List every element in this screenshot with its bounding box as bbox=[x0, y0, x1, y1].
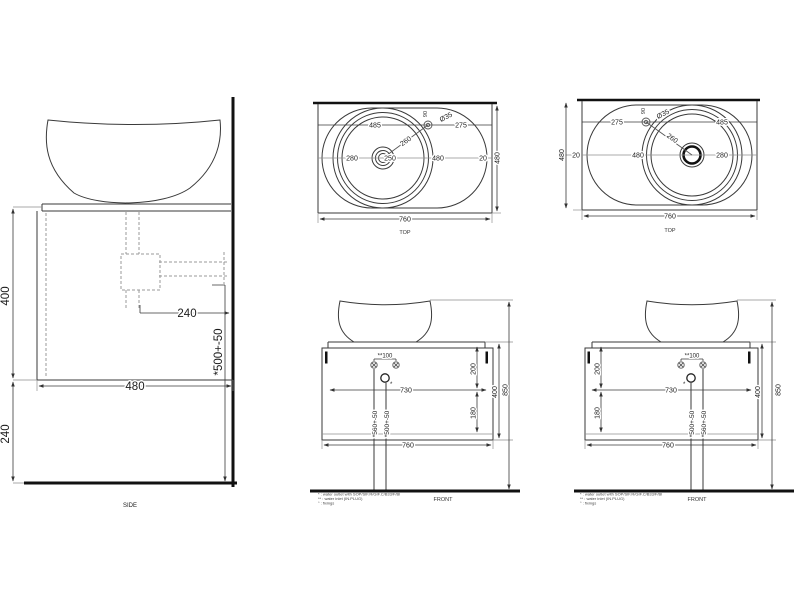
dim-depth: 480 bbox=[495, 152, 502, 164]
dim-top-section: 200 bbox=[471, 363, 478, 375]
drawing-svg: 400 240 480 240 *500+-50 SIDE 90 485 275… bbox=[0, 0, 800, 600]
dim-line-outlet-height bbox=[212, 285, 225, 481]
dim-width: 760 bbox=[662, 443, 674, 450]
dim-cabinet-height: 400 bbox=[492, 386, 499, 398]
dim-top-section: 200 bbox=[595, 363, 602, 375]
dim-total-height: 850 bbox=[503, 384, 510, 396]
dim-inlet-spacing: **100 bbox=[685, 354, 700, 360]
dim-depth: 480 bbox=[125, 381, 144, 393]
cabinet-outline bbox=[37, 211, 233, 380]
right-handle bbox=[748, 352, 751, 364]
inlet-left-cross bbox=[679, 363, 683, 367]
left-handle bbox=[588, 352, 591, 364]
dim-bottom-section: 180 bbox=[471, 407, 478, 419]
note-line-3: ° : fixings bbox=[318, 501, 334, 506]
note-line-3: ° : fixings bbox=[580, 501, 596, 506]
dim-plinth-height: 240 bbox=[0, 424, 12, 443]
dim-edge-to-drain: 280 bbox=[346, 156, 358, 163]
inlet-right-cross bbox=[394, 363, 398, 367]
dim-tap-setback: 90 bbox=[641, 108, 647, 114]
basin-bowl-outline bbox=[645, 301, 738, 342]
dim-bottom-section: 180 bbox=[595, 407, 602, 419]
dim-span: 730 bbox=[400, 388, 412, 395]
dim-total-height: 850 bbox=[776, 384, 783, 396]
dim-tap-hole-diameter: Ø35 bbox=[439, 111, 454, 123]
dim-back-gap: 20 bbox=[572, 153, 580, 160]
top-view-b-label: TOP bbox=[664, 228, 676, 234]
top-view-b: 90 275 485 Ø35 260 20 480 280 480 760 TO… bbox=[559, 100, 760, 234]
dim-back-gap: 20 bbox=[479, 156, 487, 163]
basin-bowl-outline bbox=[338, 301, 431, 342]
dim-drain-to-edge: 480 bbox=[432, 156, 444, 163]
outlet-mark: * bbox=[683, 382, 686, 388]
side-view: 400 240 480 240 *500+-50 SIDE bbox=[0, 97, 237, 509]
front-view-b-label: FRONT bbox=[688, 497, 708, 503]
water-outlet-icon bbox=[381, 374, 389, 382]
dim-inlet-spacing: **100 bbox=[378, 354, 393, 360]
dim-pipe-left-height: *560+-50 bbox=[372, 410, 379, 437]
countertop-slab bbox=[42, 204, 231, 211]
water-inlet-symbols bbox=[371, 362, 399, 368]
dim-tap-to-edge: 275 bbox=[455, 123, 467, 130]
counter-rectangle bbox=[318, 104, 492, 213]
dim-cabinet-height: 400 bbox=[0, 286, 12, 305]
dim-cabinet-height: 400 bbox=[755, 386, 762, 398]
right-handle bbox=[486, 352, 489, 364]
hidden-plumbing-trap bbox=[121, 212, 228, 310]
front-view-a: 730 200 180 **100 * *560+-50 *500+-50 40… bbox=[310, 300, 520, 506]
inlet-left-cross bbox=[372, 363, 376, 367]
extension-lines-right bbox=[737, 300, 776, 440]
top-view-a: 90 485 275 Ø35 260 280 250 480 20 480 76… bbox=[313, 103, 502, 236]
dim-width: 760 bbox=[402, 443, 414, 450]
inlet-right-cross bbox=[701, 363, 705, 367]
dim-edge-to-tap: 485 bbox=[369, 123, 381, 130]
dim-drain-to-edge: 280 bbox=[716, 153, 728, 160]
dim-drain-inner: 250 bbox=[384, 156, 396, 163]
dim-edge-to-tap: 275 bbox=[611, 120, 623, 127]
top-view-a-label: TOP bbox=[399, 230, 411, 236]
dim-width: 760 bbox=[399, 217, 411, 224]
dim-pipe-right-height: *560+-50 bbox=[701, 410, 708, 437]
dim-tap-to-edge: 485 bbox=[716, 120, 728, 127]
water-outlet-icon bbox=[687, 374, 695, 382]
extension-lines-left bbox=[13, 207, 42, 483]
basin-bowl-outline bbox=[46, 120, 220, 203]
countertop-slab bbox=[328, 342, 485, 348]
dim-pipe-left-height: *500+-50 bbox=[689, 410, 696, 437]
front-view-b: 730 200 180 **100 * *500+-50 *560+-50 40… bbox=[574, 300, 794, 506]
dim-depth: 480 bbox=[559, 149, 566, 161]
dim-tap-to-drain: 260 bbox=[665, 133, 679, 146]
dim-edge-to-drain: 480 bbox=[632, 153, 644, 160]
front-view-a-label: FRONT bbox=[434, 497, 454, 503]
dim-tap-setback: 90 bbox=[423, 111, 429, 117]
side-view-label: SIDE bbox=[123, 503, 137, 509]
dim-pipe-right-height: *500+-50 bbox=[384, 410, 391, 437]
left-handle bbox=[325, 352, 328, 364]
outlet-mark: * bbox=[390, 382, 393, 388]
countertop-slab bbox=[592, 342, 750, 348]
water-inlet-symbols bbox=[678, 362, 706, 368]
dim-trap-offset: 240 bbox=[177, 308, 196, 320]
dim-outlet-height: *500+-50 bbox=[213, 329, 225, 376]
basin-technical-drawing: 400 240 480 240 *500+-50 SIDE 90 485 275… bbox=[0, 0, 800, 600]
dim-width: 760 bbox=[664, 214, 676, 221]
dim-span: 730 bbox=[665, 388, 677, 395]
counter-rectangle bbox=[582, 101, 757, 210]
